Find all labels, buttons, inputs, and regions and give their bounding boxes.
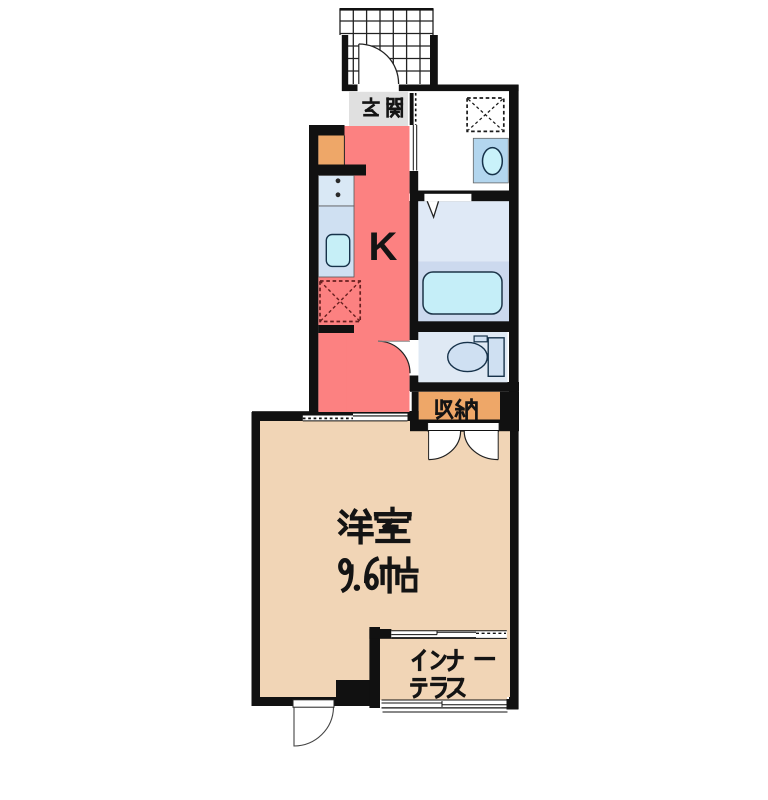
svg-text:K: K [369,225,398,269]
